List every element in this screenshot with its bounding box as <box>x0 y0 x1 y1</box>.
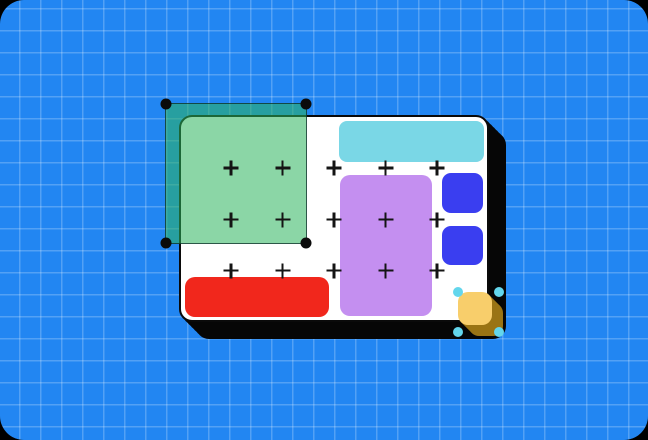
cyan-banner-shape[interactable] <box>339 121 484 162</box>
yellow-square-shape[interactable] <box>458 292 492 325</box>
green-selection-overlay[interactable] <box>165 103 307 244</box>
cyan-selection-handle-bottom-left[interactable] <box>453 327 463 337</box>
blueprint-canvas[interactable] <box>0 0 648 440</box>
indigo-square-shape-2[interactable] <box>442 226 483 265</box>
yellow-square-selection[interactable] <box>458 292 499 332</box>
red-bar-shape[interactable] <box>185 277 329 317</box>
black-selection-handle-bottom-left[interactable] <box>161 238 172 249</box>
cyan-selection-handle-bottom-right[interactable] <box>494 327 504 337</box>
purple-panel-shape[interactable] <box>340 175 432 316</box>
black-selection-handle-bottom-right[interactable] <box>301 238 312 249</box>
illustration-stage <box>0 0 648 440</box>
cyan-selection-handle-top-left[interactable] <box>453 287 463 297</box>
black-selection-handle-top-right[interactable] <box>301 99 312 110</box>
indigo-square-shape-1[interactable] <box>442 173 483 213</box>
black-selection-handle-top-left[interactable] <box>161 99 172 110</box>
cyan-selection-handle-top-right[interactable] <box>494 287 504 297</box>
